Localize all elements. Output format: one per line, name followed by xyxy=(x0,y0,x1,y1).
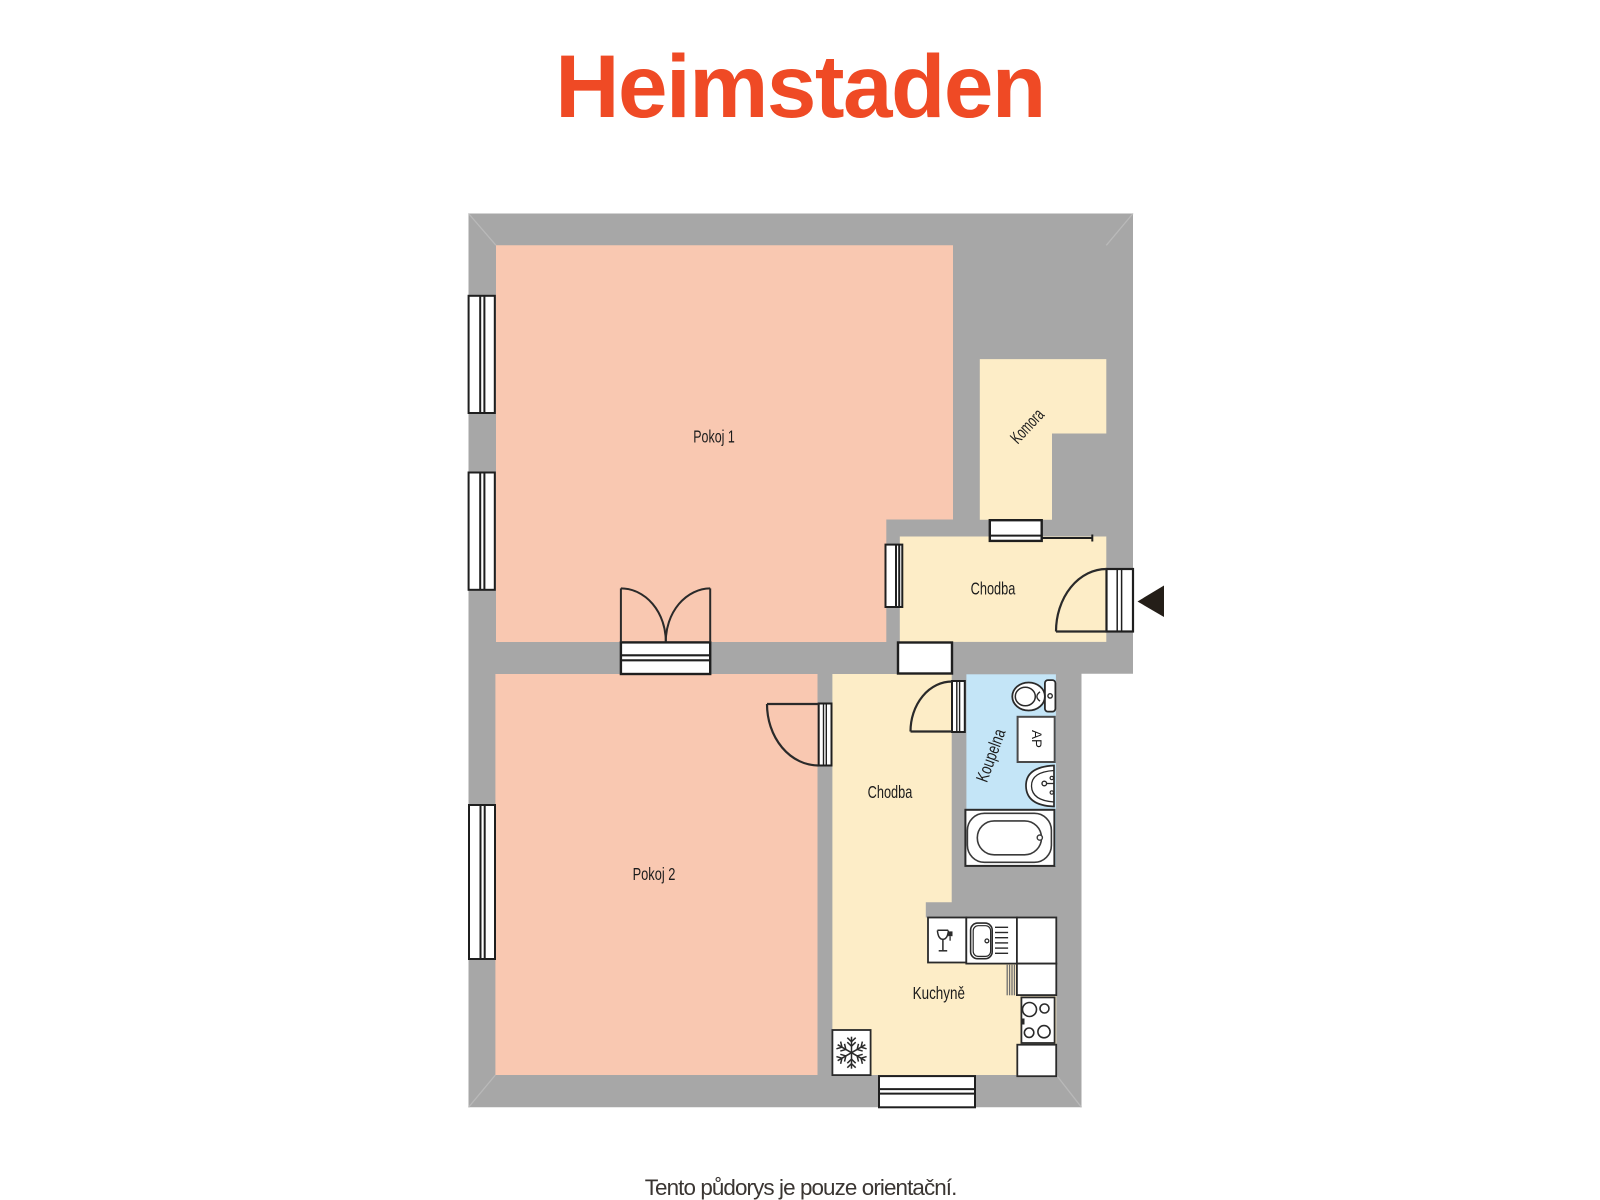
svg-text:Pokoj 1: Pokoj 1 xyxy=(693,426,735,446)
svg-text:Tento půdorys je pouze orienta: Tento půdorys je pouze orientační. xyxy=(645,1175,957,1200)
svg-text:Heimstaden: Heimstaden xyxy=(555,36,1045,136)
svg-text:Pokoj 2: Pokoj 2 xyxy=(633,864,676,884)
svg-text:AP: AP xyxy=(1029,730,1044,748)
svg-text:Chodba: Chodba xyxy=(868,782,913,802)
svg-text:Kuchyně: Kuchyně xyxy=(913,983,965,1003)
svg-text:Chodba: Chodba xyxy=(971,578,1016,598)
